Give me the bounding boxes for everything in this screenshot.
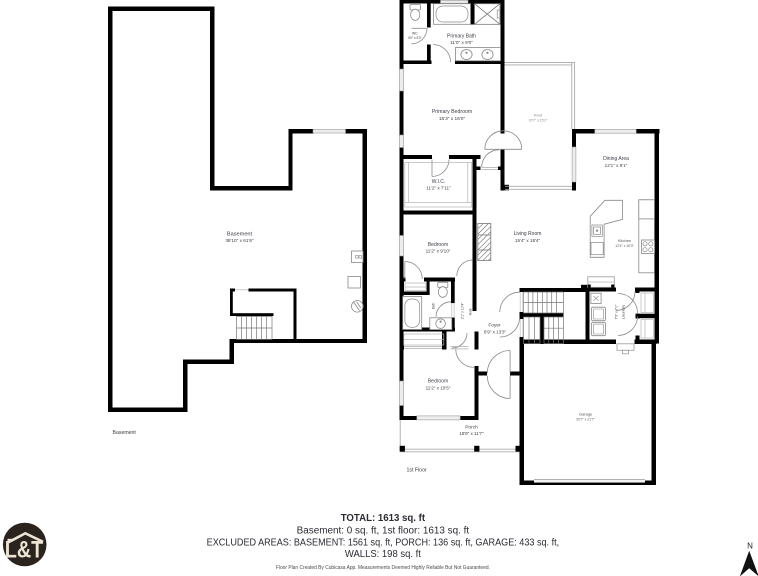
svg-text:Porch: Porch: [465, 425, 478, 431]
svg-text:Roof: Roof: [534, 114, 543, 118]
svg-text:1st Floor: 1st Floor: [407, 468, 427, 474]
svg-text:20'7" x 15'2": 20'7" x 15'2": [529, 119, 548, 123]
svg-text:Foyer: Foyer: [488, 323, 501, 329]
svg-text:18'9" x 11'7": 18'9" x 11'7": [459, 431, 484, 436]
svg-text:11'2" x 7'11": 11'2" x 7'11": [426, 186, 451, 191]
svg-text:Kitchen: Kitchen: [618, 238, 631, 243]
svg-text:Laundry: Laundry: [621, 305, 626, 319]
svg-text:15'3" x 16'0": 15'3" x 16'0": [439, 116, 466, 122]
svg-text:N: N: [747, 542, 753, 551]
svg-text:Basement: 0 sq. ft, 1st floor:: Basement: 0 sq. ft, 1st floor: 1613 sq. …: [297, 526, 470, 537]
svg-text:Floor Plan Created By Cubicasa: Floor Plan Created By Cubicasa App. Meas…: [276, 565, 490, 571]
svg-text:Garage: Garage: [579, 412, 593, 417]
svg-text:Basement: Basement: [113, 430, 137, 436]
svg-text:Basement: Basement: [227, 232, 253, 238]
svg-text:Dining Area: Dining Area: [603, 156, 629, 162]
svg-text:Bedroom: Bedroom: [428, 242, 448, 248]
svg-text:11'2" x 10'5": 11'2" x 10'5": [426, 386, 451, 391]
svg-text:6'9" x 13'3": 6'9" x 13'3": [484, 330, 507, 335]
svg-text:38'10" x 61'6": 38'10" x 61'6": [225, 238, 254, 243]
svg-text:12'4" x 10'0": 12'4" x 10'0": [615, 244, 634, 248]
svg-text:Living Room: Living Room: [514, 231, 542, 237]
svg-text:4'0" x 5'0": 4'0" x 5'0": [408, 36, 422, 40]
svg-text:11'2" x 9'10": 11'2" x 9'10": [426, 249, 451, 254]
svg-text:Primary Bath: Primary Bath: [447, 34, 476, 40]
svg-text:Bath: Bath: [432, 302, 436, 309]
svg-text:W.I.C.: W.I.C.: [432, 179, 446, 185]
svg-text:3'1" x 10'4": 3'1" x 10'4": [461, 302, 465, 320]
svg-text:11'0" x 9'0": 11'0" x 9'0": [450, 40, 473, 45]
svg-text:Hall: Hall: [467, 308, 472, 315]
svg-text:Bedroom: Bedroom: [428, 379, 448, 385]
svg-text:EXCLUDED AREAS: BASEMENT: 1561: EXCLUDED AREAS: BASEMENT: 1561 sq. ft, P…: [207, 538, 560, 549]
svg-text:WALLS: 198 sq. ft: WALLS: 198 sq. ft: [345, 549, 421, 560]
svg-text:12'1" x 9'1": 12'1" x 9'1": [605, 163, 628, 168]
svg-text:7'9" x 7'0": 7'9" x 7'0": [615, 304, 619, 320]
svg-text:15'4" x 18'4": 15'4" x 18'4": [515, 238, 541, 243]
svg-text:20'7" x 21'7": 20'7" x 21'7": [576, 418, 595, 422]
svg-text:TOTAL: 1613 sq. ft: TOTAL: 1613 sq. ft: [341, 513, 426, 524]
svg-text:Primary Bedroom: Primary Bedroom: [432, 109, 472, 115]
